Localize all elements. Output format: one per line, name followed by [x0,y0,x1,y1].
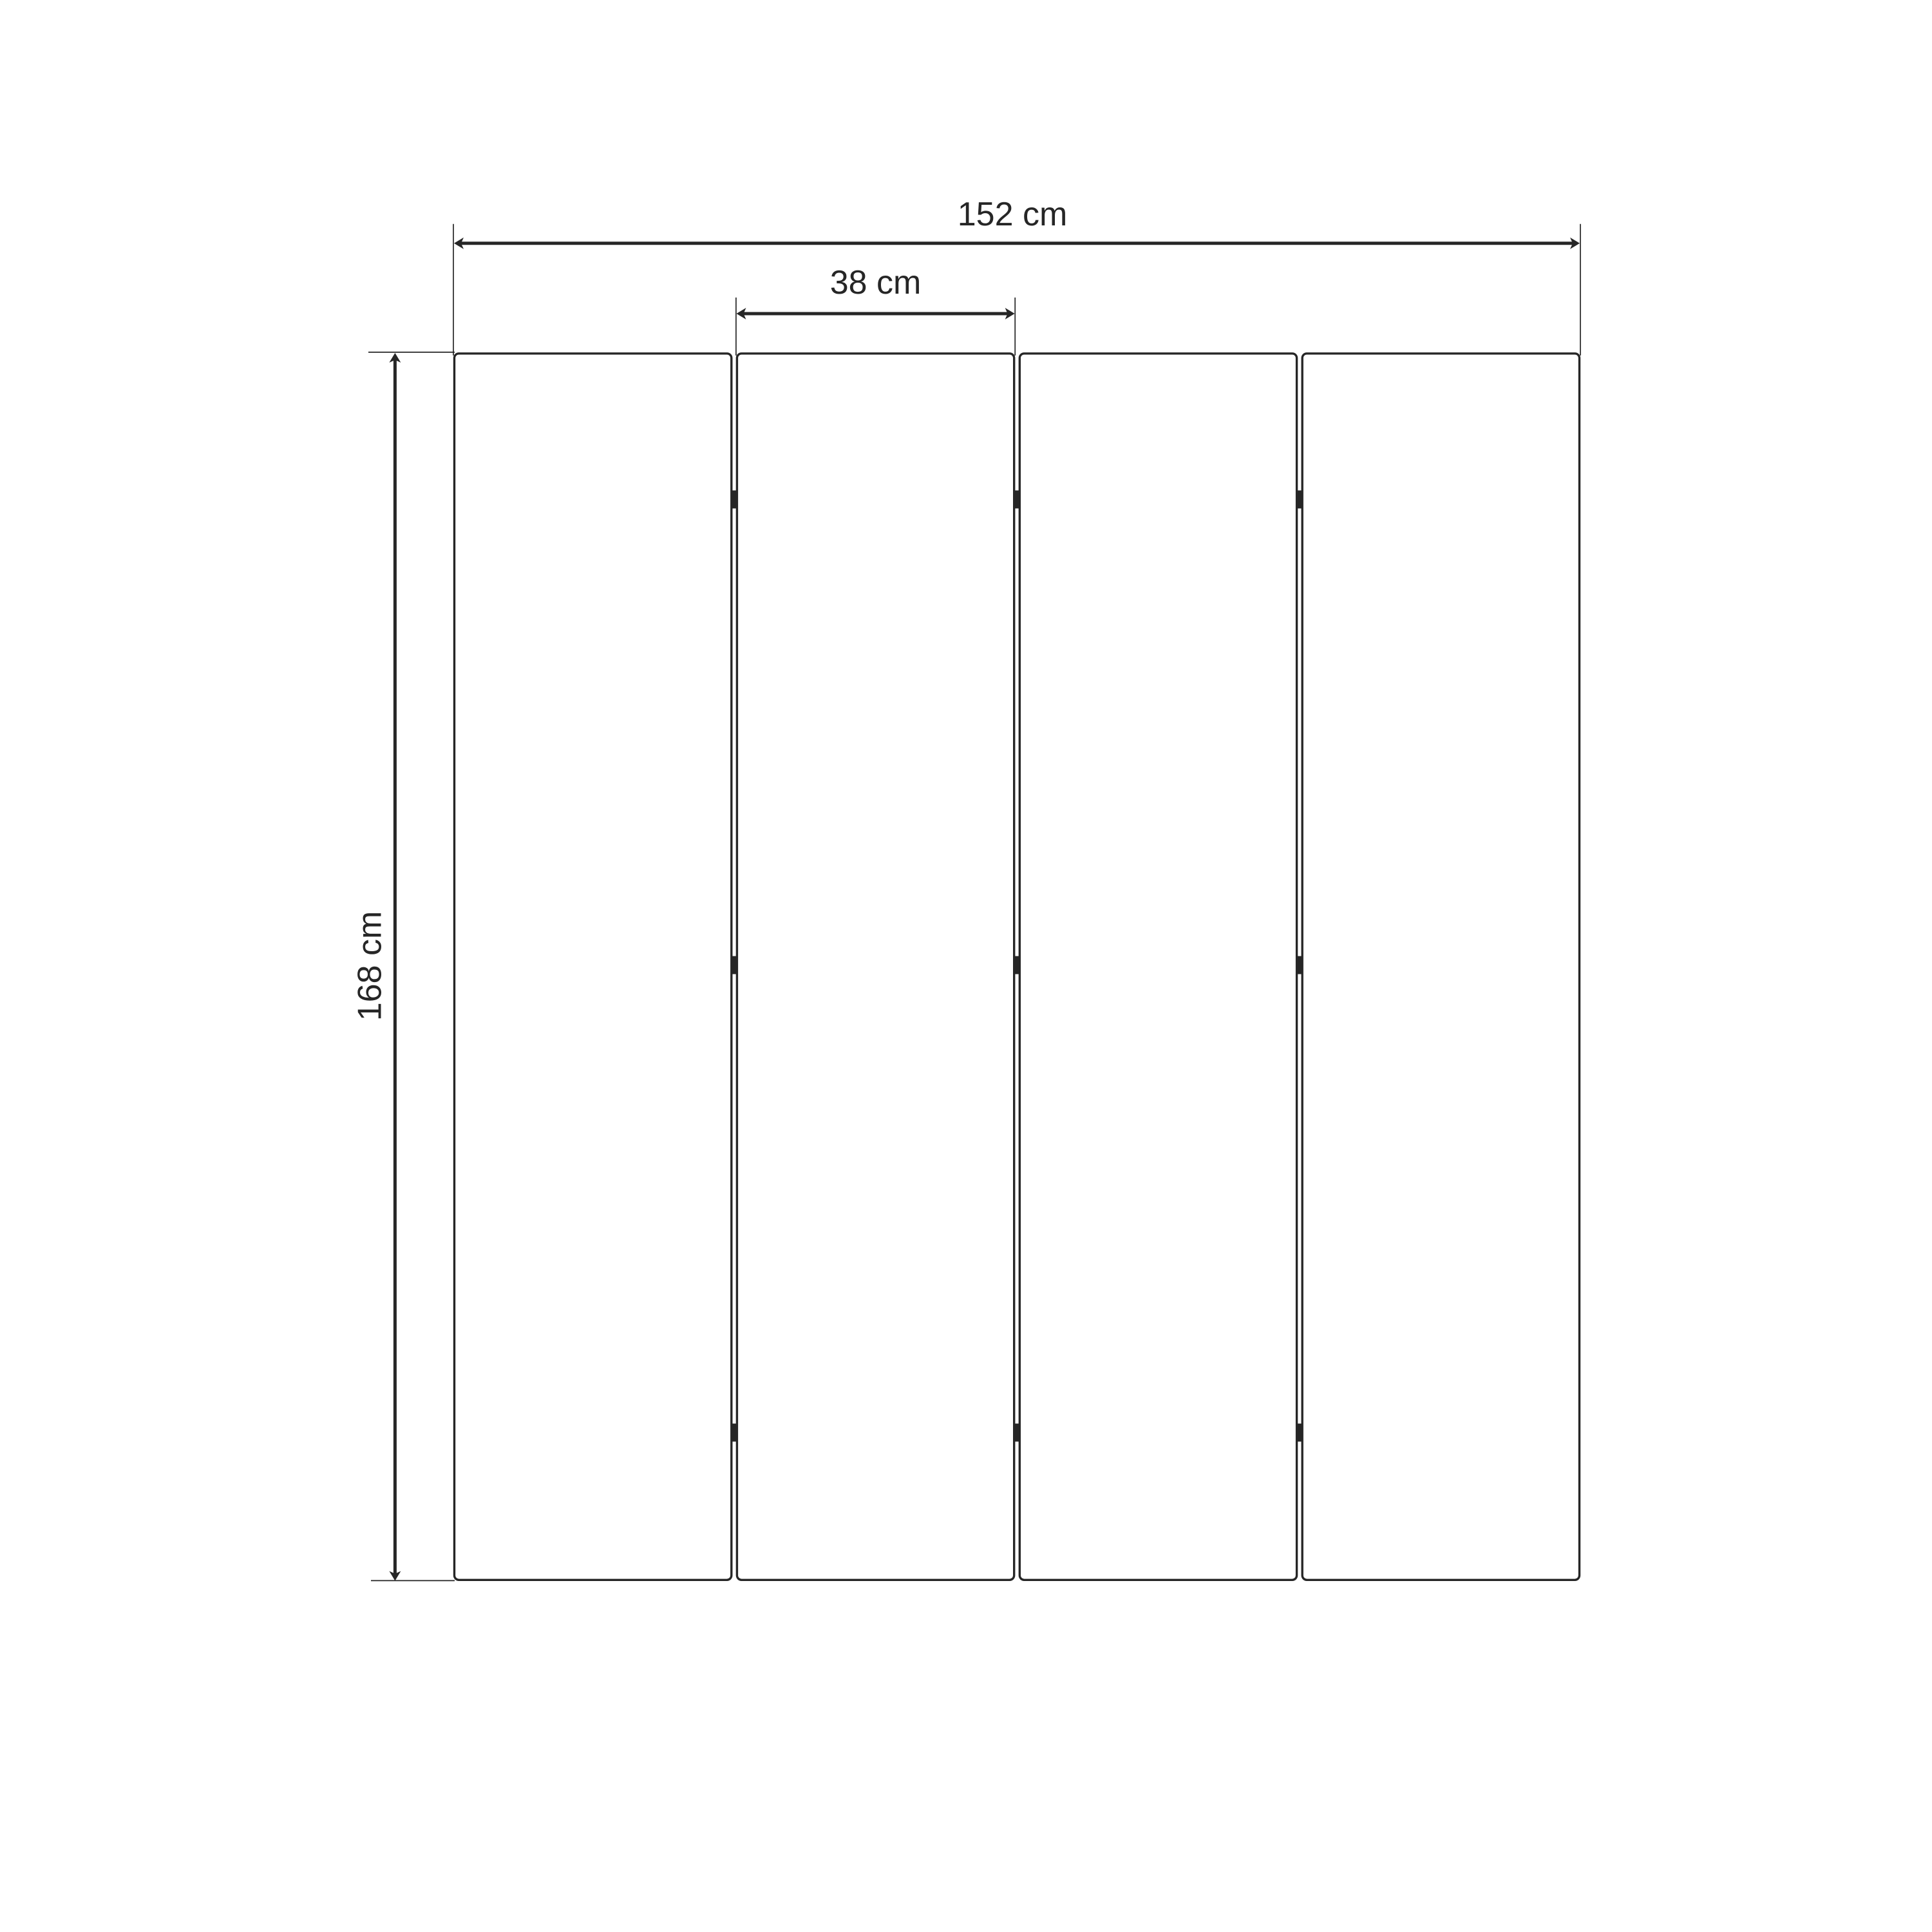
svg-text:152 cm: 152 cm [958,196,1068,233]
svg-text:168 cm: 168 cm [352,911,389,1021]
svg-text:38 cm: 38 cm [830,264,922,301]
